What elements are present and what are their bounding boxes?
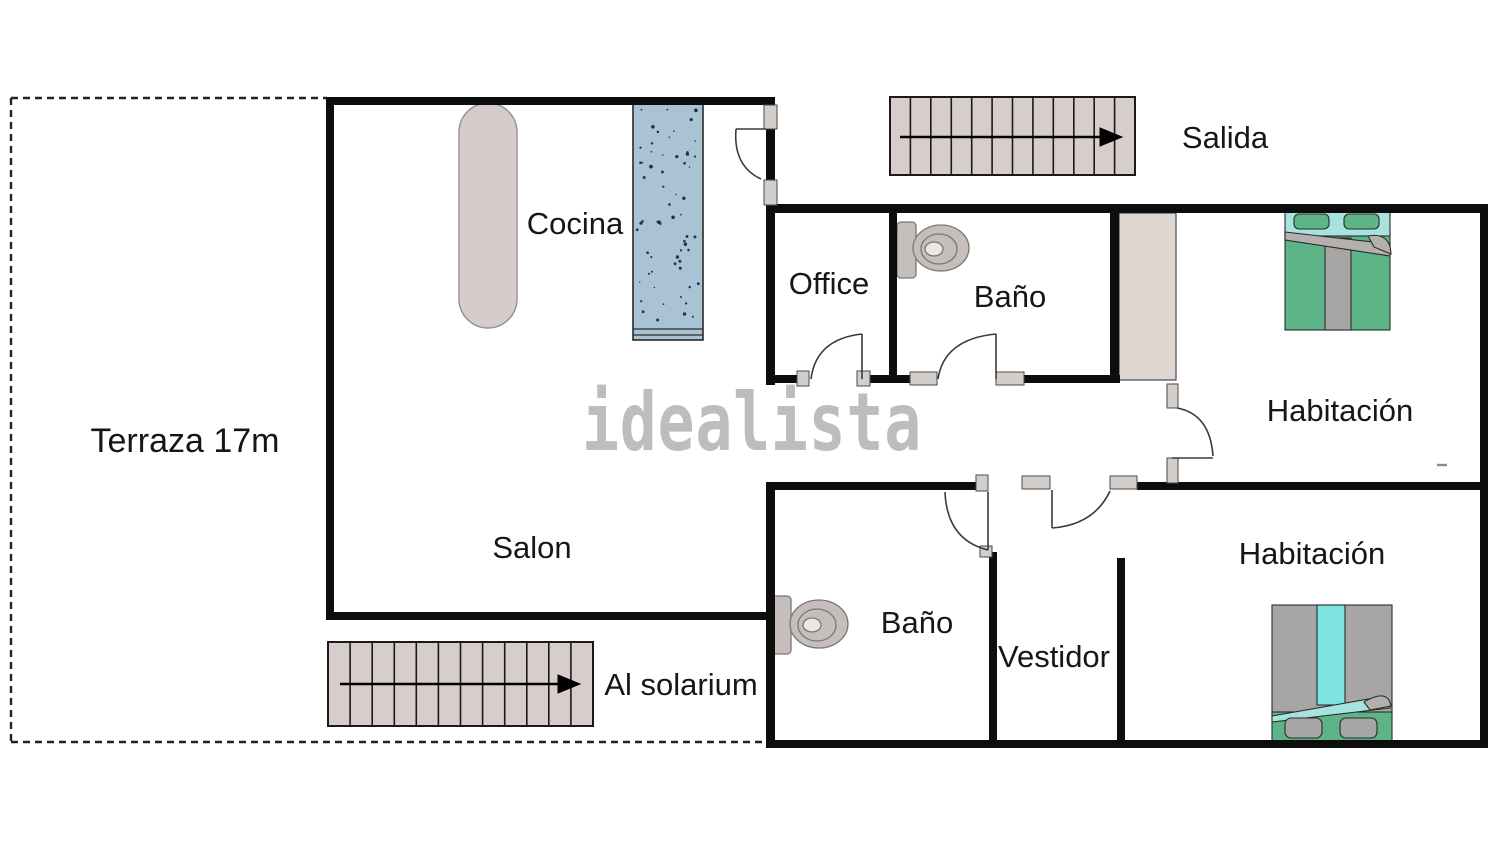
- speckle-dot: [685, 302, 687, 304]
- label-salida: Salida: [1182, 120, 1269, 155]
- speckle-dot: [674, 262, 677, 265]
- wall-bano-bottom: [1023, 375, 1120, 383]
- speckle-dot: [683, 312, 686, 315]
- door-jamb: [1167, 384, 1178, 408]
- window-sill: [1110, 476, 1137, 489]
- kitchen-island-body: [633, 100, 703, 340]
- speckle-dot: [694, 109, 698, 113]
- speckle-dot: [679, 267, 682, 270]
- speckle-dot: [684, 243, 687, 246]
- speckle-dot: [694, 235, 697, 238]
- speckle-dot: [671, 216, 675, 220]
- speckle-dot: [675, 155, 678, 158]
- speckle-dot: [675, 194, 676, 195]
- door-swing-icon: [1172, 408, 1213, 458]
- wall-salon-top: [326, 97, 772, 105]
- floorplan-page: idealista Terraza 17m Cocina Salida Offi…: [0, 0, 1500, 844]
- label-terraza: Terraza 17m: [91, 422, 280, 460]
- speckle-dot: [656, 319, 659, 322]
- speckle-dot: [639, 221, 642, 224]
- wall-hall-bottom-b: [1137, 482, 1488, 490]
- toilet-icon: [771, 596, 848, 654]
- speckle-dot: [680, 296, 682, 298]
- wall-office-left: [766, 204, 775, 385]
- wall-outer-right: [1480, 204, 1488, 748]
- window-sill: [1022, 476, 1050, 489]
- speckle-dot: [680, 214, 682, 216]
- speckle-dot: [642, 162, 644, 164]
- bed2-pillow-right: [1340, 718, 1377, 738]
- kitchen-island-icon: [633, 100, 703, 340]
- speckle-dot: [656, 221, 658, 223]
- label-office: Office: [789, 266, 869, 301]
- toilet2-drain: [803, 618, 821, 632]
- wall-salon-bottom: [326, 612, 772, 620]
- label-salon: Salon: [492, 530, 571, 565]
- speckle-dot: [694, 140, 695, 141]
- speckle-dot: [651, 271, 653, 273]
- bed2-center-runner: [1317, 605, 1345, 705]
- speckle-dot: [678, 260, 681, 263]
- wall-salon-left: [326, 97, 334, 620]
- door-jamb: [764, 105, 777, 129]
- speckle-dot: [654, 287, 656, 289]
- speckle-dot: [697, 282, 700, 285]
- speckle-dot: [649, 165, 653, 169]
- speckle-dot: [651, 125, 655, 129]
- speckle-dot: [676, 255, 679, 258]
- bed2-pillow-left: [1285, 718, 1322, 738]
- speckle-dot: [682, 197, 685, 200]
- speckle-dot: [669, 136, 671, 138]
- speckle-dot: [668, 203, 671, 206]
- speckle-dot: [642, 310, 645, 313]
- door-swing-icon: [736, 129, 766, 179]
- speckle-dot: [686, 151, 688, 153]
- door-jamb: [976, 475, 988, 491]
- double-bed-icon: [1285, 212, 1391, 330]
- wardrobe-icon: [1119, 213, 1176, 380]
- speckle-dot: [646, 251, 649, 254]
- speckle-dot: [690, 118, 693, 121]
- label-al-solarium: Al solarium: [604, 667, 757, 702]
- bed1-center-runner: [1325, 238, 1351, 330]
- door-swing-icon: [945, 492, 988, 550]
- speckle-dot: [639, 146, 641, 148]
- floorplan-drawing: idealista Terraza 17m Cocina Salida Offi…: [0, 0, 1500, 844]
- speckle-dot: [657, 131, 660, 134]
- window-sill: [996, 372, 1024, 385]
- toilet-icon: [897, 222, 969, 278]
- wall-bano2-vestidor-divider: [989, 552, 997, 742]
- speckle-dot: [662, 154, 663, 155]
- kitchen-counter-icon: [459, 103, 517, 328]
- label-habitacion-bottom: Habitación: [1239, 536, 1385, 571]
- label-bano-top: Baño: [974, 279, 1046, 314]
- speckle-dot: [692, 316, 694, 318]
- speckle-dot: [663, 303, 665, 305]
- door-jamb: [764, 180, 777, 205]
- wall-vestidor-right: [1117, 558, 1125, 742]
- speckle-dot: [643, 176, 646, 179]
- door-jamb: [1167, 458, 1178, 483]
- bed1-pillow-right: [1344, 214, 1379, 229]
- bed1-pillow-left: [1294, 214, 1329, 229]
- speckle-dot: [689, 166, 690, 167]
- stairs-salida-icon: [890, 97, 1135, 175]
- door-swing-icon: [938, 334, 996, 379]
- label-cocina: Cocina: [527, 206, 624, 241]
- speckle-dot: [648, 273, 650, 275]
- speckle-dot: [688, 286, 690, 288]
- speckle-dot: [683, 162, 686, 165]
- speckle-dot: [683, 240, 686, 243]
- speckle-dot: [640, 300, 642, 302]
- label-habitacion-top: Habitación: [1267, 393, 1413, 428]
- speckle-dot: [650, 256, 652, 258]
- speckle-dot: [651, 151, 653, 153]
- door-swing-icon: [1052, 490, 1110, 528]
- speckle-dot: [639, 161, 642, 164]
- double-bed-icon: [1272, 605, 1392, 742]
- idealista-watermark: idealista: [582, 376, 922, 469]
- speckle-dot: [680, 249, 682, 251]
- label-bano-bottom: Baño: [881, 605, 953, 640]
- speckle-dot: [651, 142, 653, 144]
- speckle-dot: [639, 282, 640, 283]
- speckle-dot: [673, 130, 675, 132]
- label-vestidor: Vestidor: [998, 639, 1110, 674]
- speckle-dot: [666, 109, 668, 111]
- speckle-dot: [661, 171, 664, 174]
- speckle-dot: [659, 223, 661, 225]
- toilet1-drain: [925, 242, 943, 256]
- speckle-dot: [641, 109, 643, 111]
- speckle-dot: [662, 186, 664, 188]
- speckle-dot: [687, 249, 690, 252]
- wall-hall-bottom-a: [766, 482, 978, 490]
- speckle-dot: [686, 235, 689, 238]
- door-swing-icon: [811, 334, 862, 379]
- wall-outer-bottom: [766, 740, 1488, 748]
- stairs-solarium-icon: [328, 642, 593, 726]
- speckle-dot: [636, 228, 639, 231]
- wall-office-bano-divider: [889, 213, 897, 383]
- speckle-dot: [694, 155, 696, 157]
- wall-bano2-left: [766, 482, 775, 748]
- wall-bano-right: [1110, 213, 1119, 383]
- wall-block-top: [766, 204, 1488, 213]
